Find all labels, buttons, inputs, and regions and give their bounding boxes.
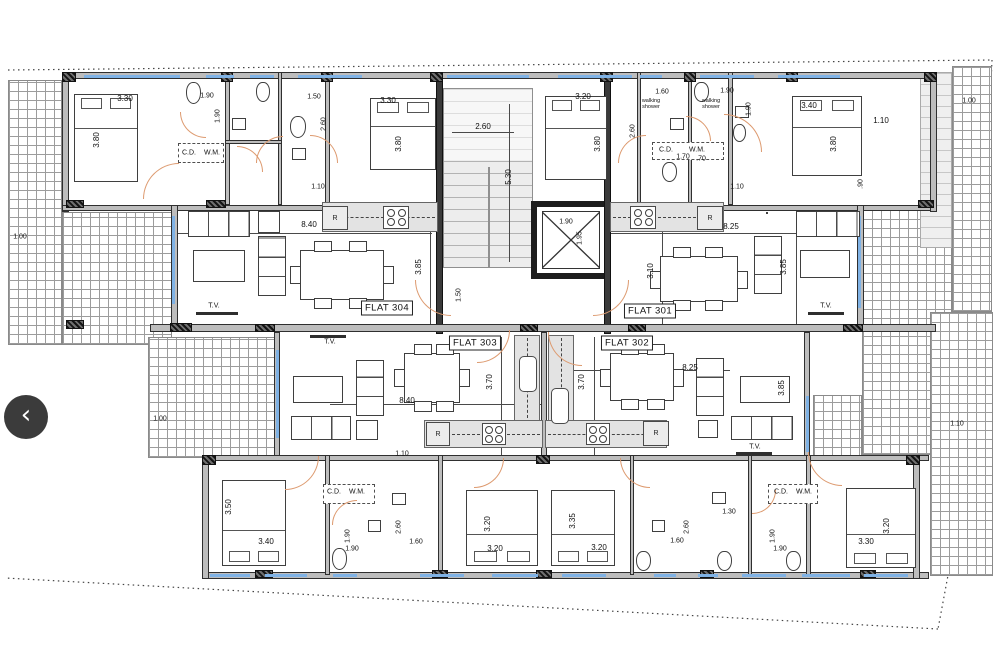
text-label: W.M. bbox=[689, 147, 705, 154]
elevator bbox=[531, 201, 611, 279]
dimension-label: 3.80 bbox=[830, 136, 838, 152]
floor-plan: RRRR3.303.801.901.901.502.603.303.80C.D.… bbox=[0, 0, 995, 656]
washbasin bbox=[652, 520, 665, 532]
dimension-label: 1.10 bbox=[873, 117, 889, 125]
window bbox=[265, 574, 307, 577]
column bbox=[62, 72, 76, 82]
dimension-label: 1.90 bbox=[773, 546, 787, 553]
dchair bbox=[621, 399, 639, 410]
text-label: W.M. bbox=[349, 489, 365, 496]
dimension-label: 1.50 bbox=[456, 288, 463, 302]
dimension-label: 3.20 bbox=[883, 518, 891, 534]
dimension-label: 3.30 bbox=[117, 95, 133, 103]
bline bbox=[75, 128, 137, 129]
window bbox=[298, 75, 362, 78]
dchair bbox=[290, 266, 301, 284]
window bbox=[742, 574, 786, 577]
carousel-prev-button[interactable]: ‹ bbox=[4, 395, 48, 439]
burner bbox=[485, 435, 493, 443]
dimension-label: 3.20 bbox=[484, 516, 492, 532]
text-label: C.D. bbox=[774, 489, 788, 496]
dimension-label: 3.20 bbox=[575, 93, 591, 101]
dimension-label: 1.90 bbox=[345, 546, 359, 553]
dimension-label: 3.40 bbox=[801, 102, 817, 110]
dchair bbox=[349, 241, 367, 252]
window bbox=[206, 75, 234, 78]
wall bbox=[202, 455, 209, 579]
window bbox=[802, 574, 850, 577]
wall bbox=[62, 72, 69, 212]
door-arc bbox=[724, 114, 762, 152]
window bbox=[806, 396, 809, 452]
door-arc bbox=[808, 452, 842, 486]
door-arc bbox=[415, 280, 451, 316]
column bbox=[684, 72, 696, 82]
dimension-label: 1.95 bbox=[577, 231, 584, 245]
armchair bbox=[258, 211, 280, 233]
column bbox=[202, 455, 216, 465]
dchair bbox=[383, 266, 394, 284]
dimension-label: 1.90 bbox=[200, 93, 214, 100]
window bbox=[562, 574, 606, 577]
window bbox=[276, 350, 279, 438]
pillow bbox=[558, 551, 579, 562]
text-label: C.D. bbox=[659, 147, 673, 154]
dimension-label: 1.00 bbox=[962, 98, 976, 105]
text-label: C.D. bbox=[182, 150, 196, 157]
text-label: T.V. bbox=[749, 444, 760, 451]
terrace-hatch bbox=[813, 395, 862, 458]
column bbox=[536, 455, 550, 464]
dimension-label: 1.90 bbox=[746, 102, 753, 116]
rail bbox=[488, 167, 490, 267]
text-label: T.V. bbox=[208, 303, 219, 310]
dimension-label: 3.35 bbox=[569, 513, 577, 529]
bline bbox=[552, 534, 614, 535]
toilet bbox=[636, 551, 651, 571]
dimension-label: 1.10 bbox=[311, 184, 325, 191]
wall bbox=[930, 72, 937, 212]
dimension-label: 1.90 bbox=[345, 529, 352, 543]
dchair bbox=[414, 344, 432, 355]
floor-plan-viewer: RRRR3.303.801.901.901.502.603.303.80C.D.… bbox=[0, 0, 995, 656]
dimension-label: 3.70 bbox=[486, 374, 494, 390]
burner bbox=[495, 435, 503, 443]
dimension-label: 3.80 bbox=[93, 132, 101, 148]
window bbox=[492, 574, 538, 577]
terrace-hatch bbox=[930, 312, 993, 576]
window bbox=[447, 75, 529, 78]
dimension-label: 5.30 bbox=[505, 169, 513, 185]
dining-table bbox=[610, 353, 674, 401]
dimension-label: 3.50 bbox=[225, 499, 233, 515]
dimension-label: 1.00 bbox=[153, 416, 167, 423]
wall bbox=[225, 72, 230, 205]
wall bbox=[325, 455, 330, 575]
dchair bbox=[737, 271, 748, 289]
dimension-label: 3.20 bbox=[591, 544, 607, 552]
washbasin bbox=[712, 492, 726, 504]
dchair bbox=[600, 369, 611, 387]
dimension-label: .90 bbox=[858, 179, 865, 189]
toilet bbox=[717, 551, 732, 571]
bed bbox=[551, 490, 615, 566]
dimension-label: 1.50 bbox=[307, 94, 321, 101]
refrigerator: R bbox=[697, 206, 723, 230]
flat-label: FLAT 302 bbox=[601, 336, 653, 351]
dimension-label: 2.60 bbox=[396, 520, 403, 534]
stove bbox=[482, 423, 506, 445]
dchair bbox=[705, 300, 723, 311]
kitchen-sink bbox=[519, 356, 537, 392]
flat-label: FLAT 304 bbox=[361, 301, 413, 316]
burner bbox=[599, 435, 607, 443]
washbasin bbox=[292, 148, 306, 160]
stove bbox=[586, 423, 610, 445]
dchair bbox=[314, 298, 332, 309]
chevron-left-icon: ‹ bbox=[21, 402, 31, 428]
bline bbox=[546, 128, 606, 129]
bed bbox=[74, 94, 138, 182]
burner bbox=[645, 218, 653, 226]
dchair bbox=[705, 247, 723, 258]
dimension-label: 3.10 bbox=[647, 263, 655, 279]
dimension-label: .70 bbox=[696, 156, 706, 163]
bline bbox=[847, 534, 915, 535]
sofa bbox=[754, 236, 782, 294]
washbasin bbox=[392, 493, 406, 505]
dimension-label: 1.70 bbox=[676, 154, 690, 161]
dimension-label: 8.25 bbox=[682, 364, 698, 372]
flat-label: FLAT 303 bbox=[449, 336, 501, 351]
dining-table bbox=[300, 250, 384, 300]
column bbox=[520, 324, 538, 332]
text-label: walking shower bbox=[634, 98, 668, 110]
column bbox=[206, 200, 226, 208]
dimension-label: 2.60 bbox=[684, 520, 691, 534]
sofa bbox=[731, 416, 793, 440]
washbasin bbox=[670, 118, 684, 130]
tv bbox=[196, 312, 238, 315]
stove bbox=[383, 206, 409, 229]
burner bbox=[387, 209, 395, 217]
tv bbox=[736, 452, 772, 455]
refrigerator: R bbox=[322, 206, 348, 230]
pillow bbox=[507, 551, 530, 562]
column bbox=[66, 320, 84, 329]
dchair bbox=[647, 399, 665, 410]
coffee-table bbox=[293, 376, 343, 403]
dchair bbox=[414, 401, 432, 412]
window bbox=[778, 75, 840, 78]
burner bbox=[634, 218, 642, 226]
burner bbox=[485, 426, 493, 434]
toilet bbox=[290, 116, 306, 138]
column bbox=[255, 324, 275, 332]
pillow bbox=[580, 100, 600, 111]
armchair bbox=[698, 420, 718, 438]
dimension-label: 3.80 bbox=[594, 136, 602, 152]
window bbox=[333, 574, 357, 577]
armchair bbox=[356, 420, 378, 440]
door-arc bbox=[752, 490, 776, 514]
dimension-label: 1.10 bbox=[730, 184, 744, 191]
window bbox=[864, 574, 908, 577]
kitchen-sink bbox=[551, 388, 569, 424]
window bbox=[172, 216, 175, 304]
door-arc bbox=[618, 135, 646, 163]
pillow bbox=[258, 551, 279, 562]
flat-label: FLAT 301 bbox=[624, 304, 676, 319]
burner bbox=[398, 218, 406, 226]
stove bbox=[630, 206, 656, 229]
pillow bbox=[229, 551, 250, 562]
window bbox=[640, 75, 662, 78]
pillow bbox=[854, 553, 876, 564]
sofa bbox=[356, 360, 384, 416]
dimension-label: 1.60 bbox=[409, 539, 423, 546]
dimension-label: 2.60 bbox=[321, 117, 328, 131]
dchair bbox=[459, 369, 470, 387]
dimension-label: 3.40 bbox=[258, 538, 274, 546]
door-arc bbox=[143, 163, 179, 199]
text-label: T.V. bbox=[820, 303, 831, 310]
pillow bbox=[832, 100, 854, 111]
burner bbox=[495, 426, 503, 434]
window bbox=[420, 574, 464, 577]
coffee-table bbox=[193, 250, 245, 282]
window bbox=[250, 75, 274, 78]
window bbox=[654, 574, 676, 577]
pillow bbox=[407, 102, 428, 113]
dimension-label: 1.30 bbox=[722, 509, 736, 516]
door-arc bbox=[180, 112, 206, 138]
column bbox=[66, 200, 84, 208]
pillow bbox=[886, 553, 908, 564]
coffee-table bbox=[800, 250, 850, 278]
tv bbox=[808, 312, 844, 315]
bed bbox=[222, 480, 286, 566]
sofa bbox=[291, 416, 351, 440]
bline bbox=[223, 530, 285, 531]
toilet bbox=[662, 162, 677, 182]
dimension-line bbox=[452, 132, 514, 133]
staircase bbox=[443, 88, 533, 268]
dimension-label: 1.60 bbox=[655, 89, 669, 96]
washbasin bbox=[368, 520, 381, 532]
terrace-hatch bbox=[148, 337, 276, 458]
pillow bbox=[81, 98, 102, 109]
door-arc bbox=[474, 458, 504, 488]
refrigerator: R bbox=[426, 422, 450, 446]
column bbox=[924, 72, 937, 82]
text-label: W.M. bbox=[204, 150, 220, 157]
burner bbox=[599, 426, 607, 434]
door-arc bbox=[310, 135, 338, 163]
column bbox=[430, 72, 443, 82]
text-label: C.D. bbox=[327, 489, 341, 496]
dimension-label: 1.90 bbox=[215, 109, 222, 123]
dimension-label: 2.60 bbox=[475, 123, 491, 131]
window bbox=[698, 574, 718, 577]
column bbox=[906, 455, 920, 465]
window bbox=[84, 75, 180, 78]
sofa bbox=[796, 211, 860, 237]
text-label: T.V. bbox=[324, 339, 335, 346]
bline bbox=[793, 127, 861, 128]
text-label: W.M. bbox=[796, 489, 812, 496]
dimension-label: 1.10 bbox=[950, 421, 964, 428]
dimension-label: 1.90 bbox=[559, 219, 573, 226]
dchair bbox=[394, 369, 405, 387]
burner bbox=[589, 426, 597, 434]
dimension-label: 3.85 bbox=[780, 259, 788, 275]
toilet bbox=[186, 82, 201, 104]
dchair bbox=[436, 401, 454, 412]
dining-table bbox=[660, 256, 738, 302]
column bbox=[628, 324, 646, 332]
dimension-label: 8.40 bbox=[399, 397, 415, 405]
text-label: walking shower bbox=[694, 98, 728, 110]
dimension-label: 8.40 bbox=[301, 221, 317, 229]
bed bbox=[466, 490, 538, 566]
column bbox=[918, 200, 934, 208]
sofa bbox=[258, 236, 286, 296]
bed bbox=[846, 488, 916, 568]
window bbox=[558, 75, 632, 78]
door-arc bbox=[285, 456, 319, 490]
window bbox=[210, 574, 250, 577]
refrigerator: R bbox=[643, 421, 669, 446]
terrace-hatch bbox=[8, 80, 62, 345]
dimension-label: 8.25 bbox=[723, 223, 739, 231]
pillow bbox=[552, 100, 572, 111]
dimension-label: 1.90 bbox=[770, 529, 777, 543]
dimension-label: 3.30 bbox=[858, 538, 874, 546]
armchair bbox=[766, 212, 768, 214]
dimension-label: 1.60 bbox=[670, 538, 684, 545]
column bbox=[536, 570, 552, 578]
burner bbox=[398, 209, 406, 217]
dimension-label: 3.85 bbox=[778, 380, 786, 396]
toilet bbox=[256, 82, 270, 102]
burner bbox=[634, 209, 642, 217]
wall bbox=[806, 455, 811, 575]
sofa bbox=[696, 358, 724, 416]
wall bbox=[325, 72, 330, 205]
pillow bbox=[587, 551, 608, 562]
bline bbox=[371, 126, 435, 127]
toilet bbox=[786, 551, 801, 571]
door-arc bbox=[620, 458, 650, 488]
dimension-label: 1.00 bbox=[13, 234, 27, 241]
door-arc bbox=[686, 116, 711, 141]
dchair bbox=[673, 247, 691, 258]
dimension-label: 3.20 bbox=[487, 545, 503, 553]
sofa bbox=[188, 211, 250, 237]
dimension-label: 3.85 bbox=[415, 259, 423, 275]
burner bbox=[645, 209, 653, 217]
bline bbox=[467, 534, 537, 535]
dchair bbox=[314, 241, 332, 252]
dimension-label: 1.90 bbox=[720, 88, 734, 95]
burner bbox=[589, 435, 597, 443]
burner bbox=[387, 218, 395, 226]
dimension-label: 1.10 bbox=[395, 451, 409, 458]
window bbox=[700, 75, 754, 78]
wall bbox=[748, 455, 752, 575]
bed bbox=[370, 98, 436, 170]
dimension-label: 3.80 bbox=[395, 136, 403, 152]
dimension-label: 2.60 bbox=[630, 124, 637, 138]
wall bbox=[438, 455, 443, 575]
dimension-label: 3.70 bbox=[578, 374, 586, 390]
dimension-label: 3.30 bbox=[380, 97, 396, 105]
column bbox=[170, 323, 192, 332]
washbasin bbox=[232, 118, 246, 130]
column bbox=[843, 324, 863, 332]
